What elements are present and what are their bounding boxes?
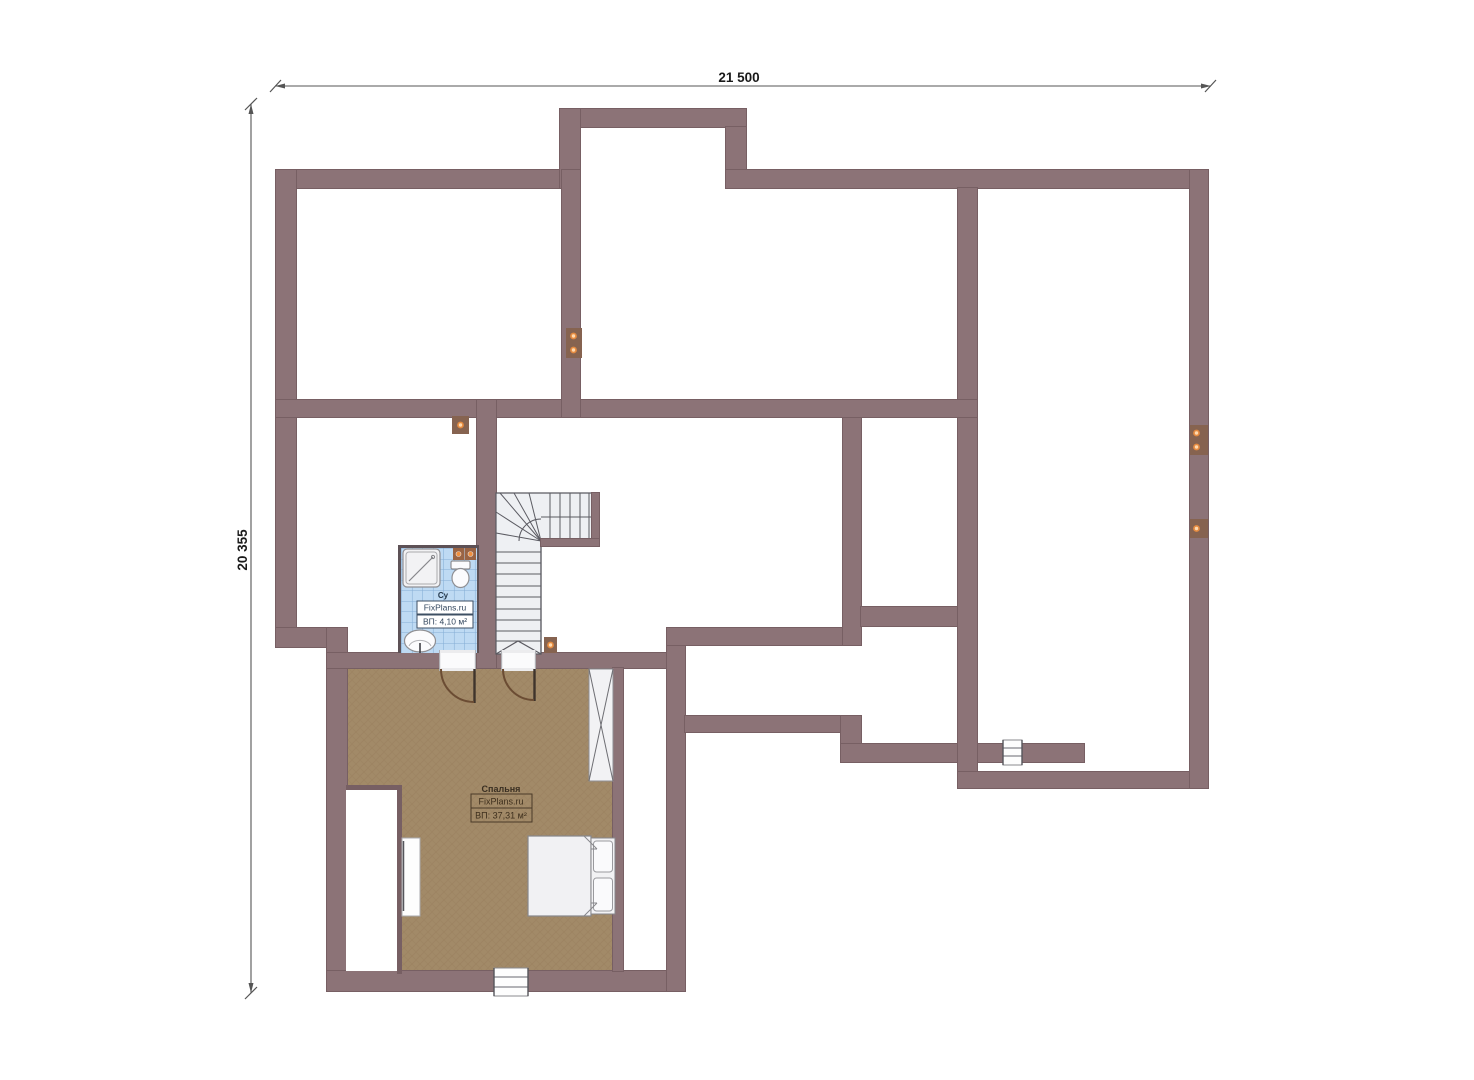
svg-text:20 355: 20 355: [235, 529, 250, 571]
svg-text:ВП: 37,31 м²: ВП: 37,31 м²: [475, 811, 527, 821]
svg-text:FixPlans.ru: FixPlans.ru: [424, 603, 467, 613]
svg-text:ВП: 4,10 м²: ВП: 4,10 м²: [423, 617, 467, 627]
svg-text:21 500: 21 500: [718, 70, 759, 85]
svg-text:Су: Су: [438, 591, 449, 600]
svg-text:Спальня: Спальня: [482, 784, 521, 794]
svg-text:FixPlans.ru: FixPlans.ru: [478, 797, 523, 807]
